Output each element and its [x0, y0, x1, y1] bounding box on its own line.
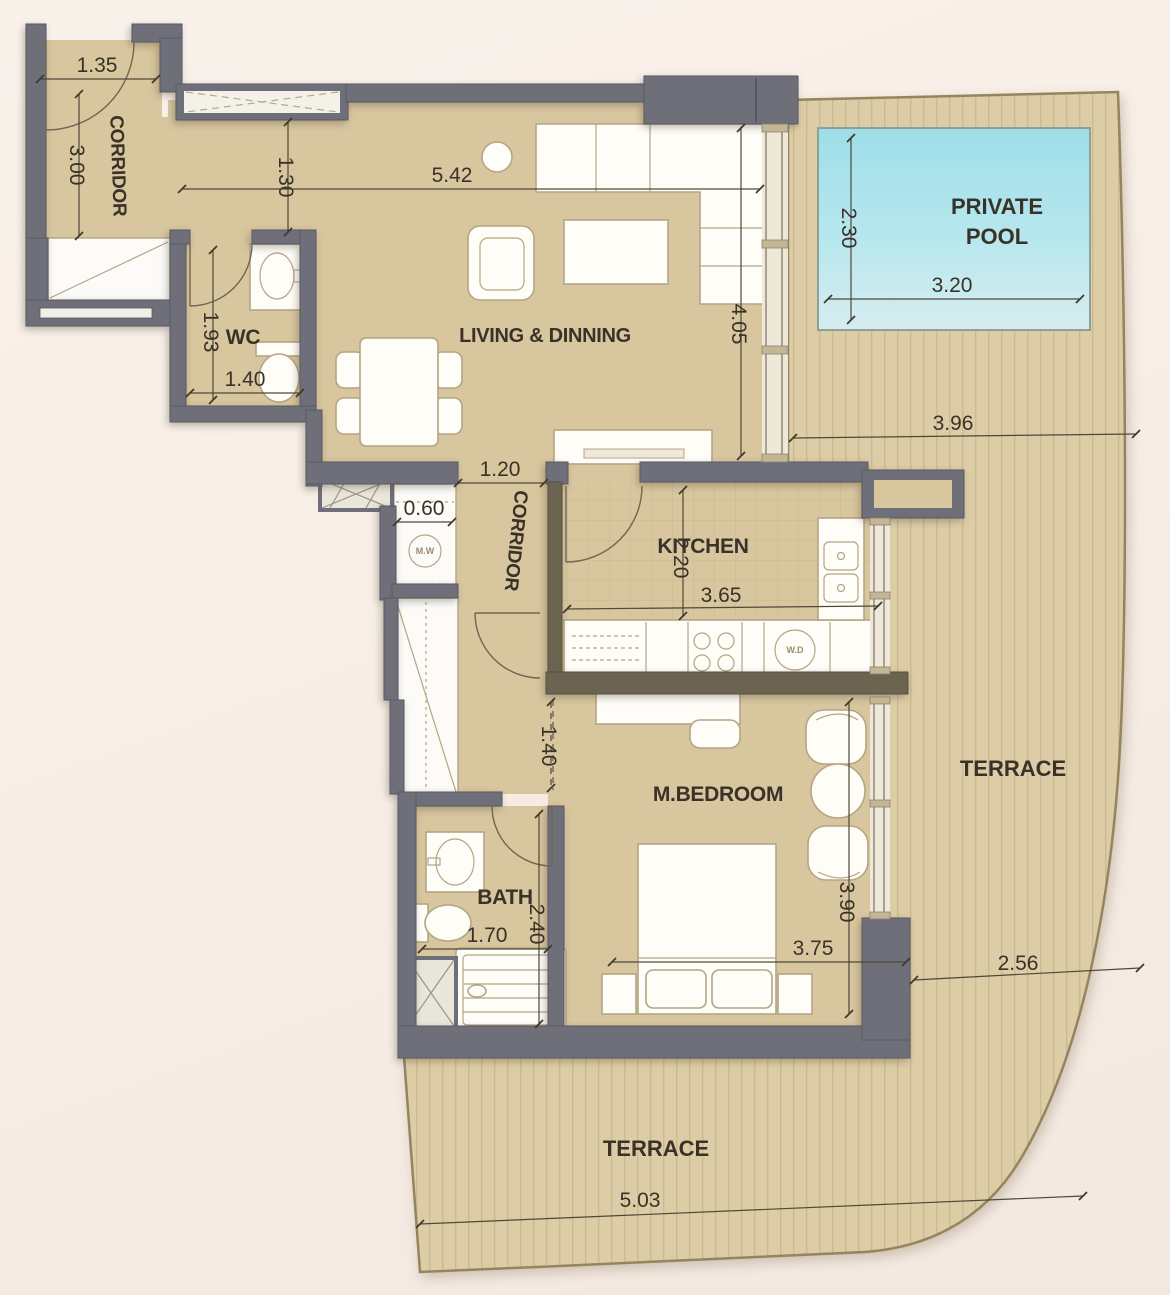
wall [398, 1026, 910, 1058]
dim-wc-length: 1.93 [199, 312, 222, 353]
floor-lamp [482, 142, 512, 172]
dim-terrace-bottom-width: 5.03 [620, 1189, 661, 1212]
dim-pool-depth: 2.30 [837, 208, 860, 249]
dim-bedroom-depth: 3.90 [835, 882, 858, 923]
terrace-bottom-label: TERRACE [603, 1136, 709, 1161]
kitchen-terrace-window [870, 518, 890, 674]
tv-unit [554, 430, 712, 464]
coffee-table [564, 220, 668, 284]
dim-pool-width: 3.20 [932, 274, 973, 297]
wall [346, 84, 644, 102]
kitchen-wall [548, 482, 562, 680]
bath-sink [426, 832, 484, 892]
bedroom-terrace-window [870, 697, 890, 919]
bedroom-sitting-area [806, 710, 868, 880]
nightstand [602, 974, 636, 1014]
wall [640, 462, 868, 482]
dim-bath-length: 2.40 [525, 904, 548, 945]
desk-chair [690, 720, 740, 748]
bath-toilet [412, 904, 471, 942]
armchair [468, 226, 534, 300]
dim-bedroom-width: 3.75 [793, 937, 834, 960]
pool-label-line2: POOL [966, 224, 1028, 249]
wall [170, 406, 316, 422]
dim-living-width: 5.42 [432, 164, 473, 187]
pool-label-line1: PRIVATE [951, 194, 1043, 219]
dim-living-depth: 4.05 [727, 304, 750, 345]
wall [390, 700, 404, 794]
floor-plan-page: PRIVATE POOL [0, 0, 1170, 1295]
wall [548, 806, 564, 1038]
wall-column-block [644, 76, 798, 124]
dim-corridor-length: 3.00 [65, 145, 88, 186]
pillow [646, 970, 706, 1008]
dim-bath-width: 1.70 [467, 924, 508, 947]
dim-terrace-right-width: 2.56 [998, 952, 1039, 975]
wall [546, 462, 568, 484]
kitchen-counter: W.D [564, 620, 886, 678]
living-dining-label: LIVING & DINNING [459, 325, 631, 347]
dim-hall-opening: 1.20 [480, 458, 521, 481]
wall [300, 230, 316, 422]
microwave-label: M.W [416, 546, 435, 556]
wall [862, 918, 910, 1040]
wall [26, 24, 46, 240]
dim-hallway-width: 1.40 [537, 726, 560, 767]
wall [170, 230, 190, 244]
nightstand [778, 974, 812, 1014]
dim-kitchen-width: 3.65 [701, 584, 742, 607]
kitchen-label: KITCHEN [657, 535, 748, 558]
wall [384, 598, 398, 700]
kitchen-bedroom-wall [546, 672, 908, 694]
wall-with-window [26, 300, 170, 326]
washer-dryer-label: W.D [787, 645, 804, 655]
terrace-pillar [862, 470, 964, 518]
dining-table [360, 338, 438, 446]
entry-storage-closet [48, 238, 170, 302]
inner-corridor-floor [456, 460, 550, 794]
bedroom-label: M.BEDROOM [653, 783, 783, 806]
corridor-upper-label: CORRIDOR [105, 115, 130, 217]
floor-plan: PRIVATE POOL [0, 0, 1170, 1295]
terrace-right-label: TERRACE [960, 756, 1066, 781]
wall [26, 238, 48, 304]
bath-label: BATH [477, 886, 533, 909]
living-terrace-window [762, 124, 788, 462]
dim-wc-width: 1.40 [225, 368, 266, 391]
wall [170, 230, 186, 422]
wc-sink [250, 244, 304, 310]
kitchen-sink-counter [818, 518, 864, 620]
entry-cabinet [176, 84, 348, 120]
dim-terrace-top-width: 3.96 [933, 412, 974, 435]
round-table [811, 764, 865, 818]
lounge-chair [808, 826, 868, 880]
wc-label: WC [226, 326, 261, 349]
wall [306, 462, 458, 484]
wall [398, 792, 416, 1036]
lounge-chair [806, 710, 866, 764]
pillow [712, 970, 772, 1008]
bed [638, 844, 776, 1014]
dim-entry-passage: 1.30 [274, 157, 297, 198]
dim-corridor-width: 1.35 [77, 54, 118, 77]
dim-closet-depth: 0.60 [404, 497, 445, 520]
wall [392, 584, 458, 598]
